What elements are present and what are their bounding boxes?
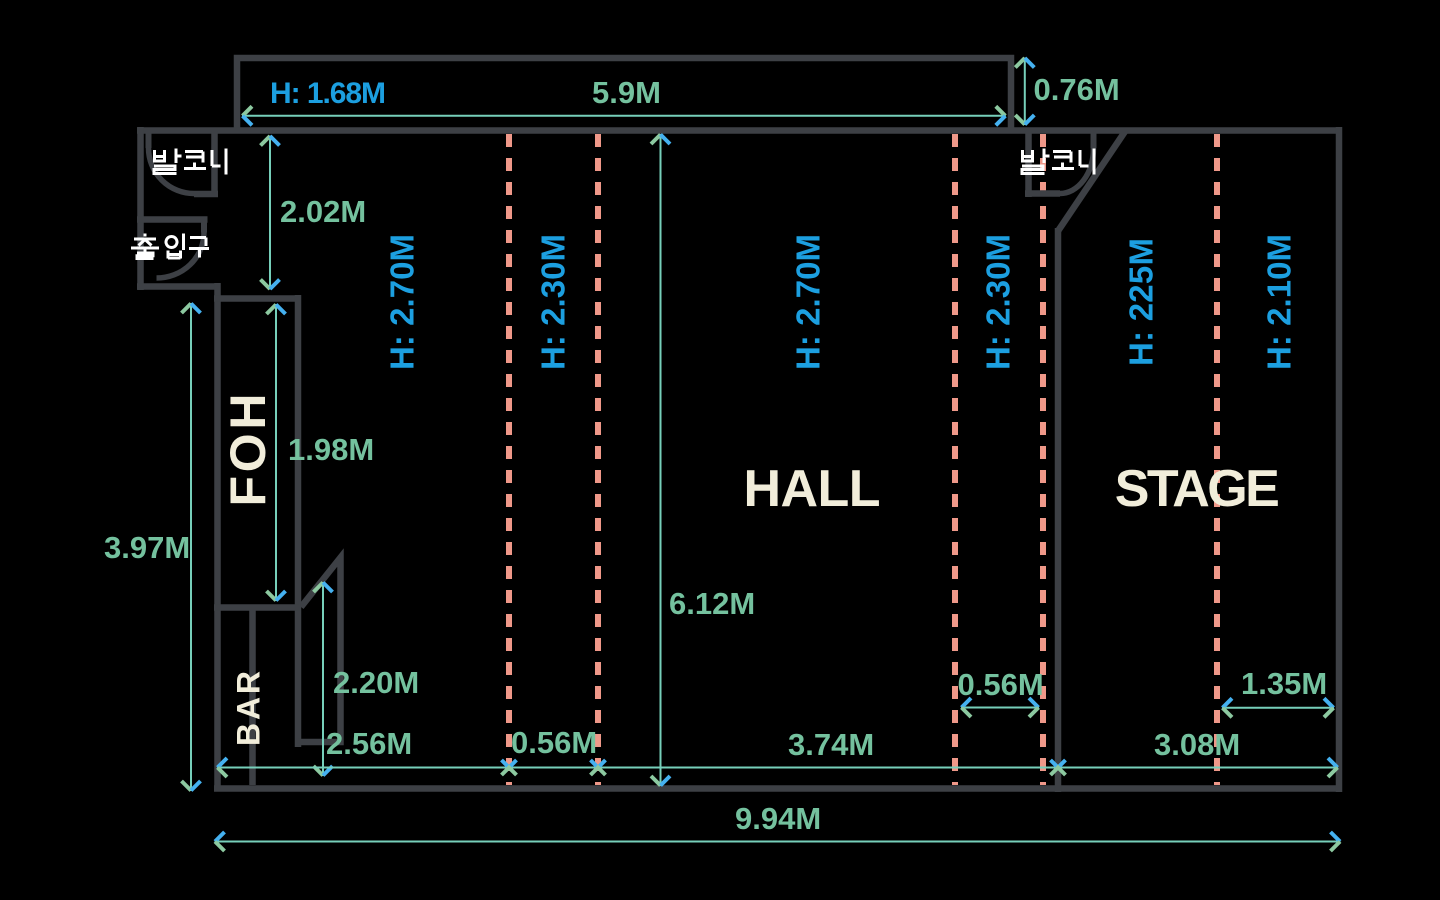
svg-text:2.20M: 2.20M xyxy=(333,665,419,700)
svg-text:0.76M: 0.76M xyxy=(1034,72,1120,107)
svg-text:FOH: FOH xyxy=(220,394,276,507)
svg-text:0.56M: 0.56M xyxy=(511,725,597,760)
svg-text:H: 2.30M: H: 2.30M xyxy=(980,234,1017,370)
svg-text:1.35M: 1.35M xyxy=(1241,666,1327,701)
svg-text:H: 2.70M: H: 2.70M xyxy=(790,234,827,370)
svg-text:3.08M: 3.08M xyxy=(1154,727,1240,762)
svg-text:H: 2.10M: H: 2.10M xyxy=(1261,234,1298,370)
svg-text:6.12M: 6.12M xyxy=(669,586,755,621)
svg-text:3.97M: 3.97M xyxy=(104,530,190,565)
svg-text:2.02M: 2.02M xyxy=(280,194,366,229)
svg-text:STAGE: STAGE xyxy=(1115,460,1280,518)
svg-text:BAR: BAR xyxy=(231,671,267,746)
svg-text:HALL: HALL xyxy=(744,460,881,518)
svg-text:H: 2.30M: H: 2.30M xyxy=(535,234,572,370)
svg-text:9.94M: 9.94M xyxy=(735,801,821,836)
svg-text:5.9M: 5.9M xyxy=(592,75,661,110)
svg-text:0.56M: 0.56M xyxy=(958,667,1044,702)
svg-text:H: 2.70M: H: 2.70M xyxy=(384,234,421,370)
svg-text:H: 225M: H: 225M xyxy=(1123,238,1160,366)
svg-text:2.56M: 2.56M xyxy=(326,726,412,761)
svg-text:3.74M: 3.74M xyxy=(788,727,874,762)
svg-text:1.98M: 1.98M xyxy=(288,432,374,467)
svg-text:H: 1.68M: H: 1.68M xyxy=(270,77,386,110)
